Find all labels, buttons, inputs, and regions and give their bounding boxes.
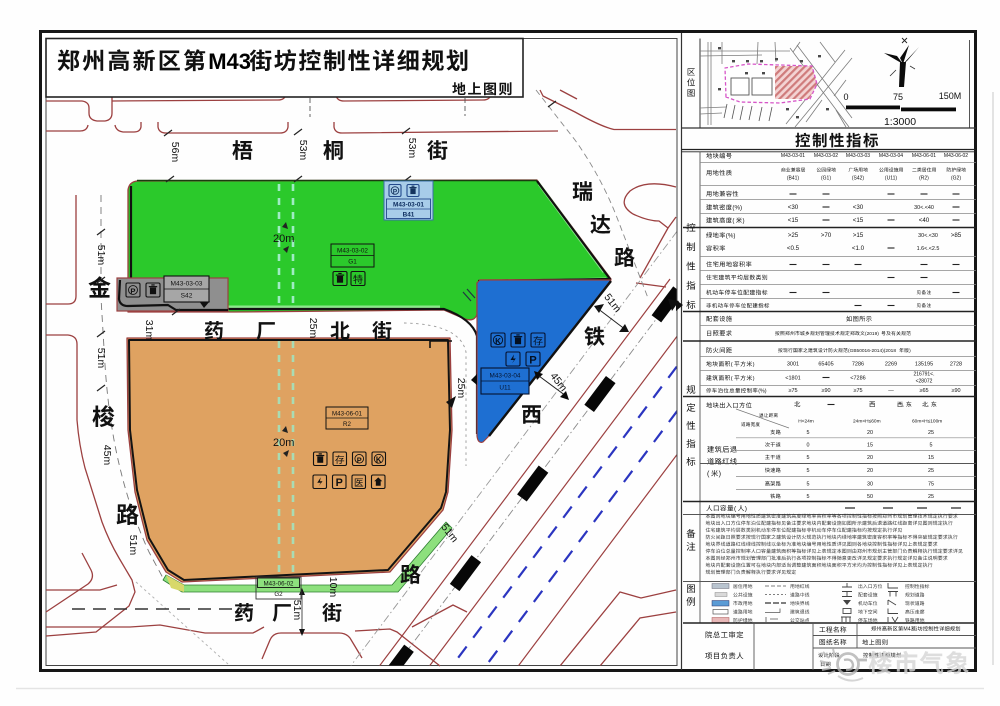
svg-text:(: ( [731, 362, 733, 368]
svg-text:B41: B41 [403, 212, 415, 219]
svg-text:(S42): (S42) [852, 176, 865, 182]
svg-text:60m<H≤100m: 60m<H≤100m [912, 419, 942, 425]
svg-text:>15: >15 [853, 232, 864, 239]
svg-text:<40: <40 [919, 217, 930, 224]
svg-text:(2019): (2019) [865, 331, 879, 337]
svg-text:53m: 53m [297, 140, 309, 161]
svg-text:(R2): (R2) [919, 176, 929, 182]
svg-text:): ) [743, 218, 745, 225]
svg-text:25m: 25m [455, 378, 467, 399]
svg-text:H<24m: H<24m [798, 419, 814, 425]
svg-text:135195: 135195 [915, 362, 933, 368]
svg-text:56m: 56m [169, 142, 181, 163]
svg-text:20: 20 [867, 430, 873, 436]
svg-text:0: 0 [807, 443, 810, 449]
svg-text:): ) [753, 376, 755, 382]
svg-text:31m: 31m [143, 320, 155, 341]
svg-text:): ) [719, 469, 721, 478]
svg-text:(U11): (U11) [885, 176, 897, 182]
svg-text:65405: 65405 [818, 362, 833, 368]
svg-text:7286: 7286 [852, 362, 864, 368]
svg-text:15: 15 [867, 443, 873, 449]
svg-text:24m<H≤60m: 24m<H≤60m [853, 419, 881, 425]
svg-text:≥90: ≥90 [951, 388, 960, 394]
svg-text:5: 5 [930, 443, 933, 449]
svg-text:10m: 10m [327, 577, 339, 598]
svg-text:≥90: ≥90 [821, 388, 830, 394]
svg-text:P: P [529, 354, 537, 366]
svg-text:51m: 51m [95, 245, 107, 266]
svg-text:M43-03-01: M43-03-01 [781, 153, 805, 159]
svg-text:<15: <15 [788, 217, 799, 224]
svg-text:53m: 53m [406, 138, 418, 159]
svg-text:(%): (%) [732, 205, 742, 212]
svg-text:<15: <15 [853, 217, 864, 224]
svg-text:<30: <30 [853, 204, 864, 211]
svg-text:): ) [753, 362, 755, 368]
svg-text:15: 15 [928, 455, 934, 461]
svg-text:25: 25 [928, 468, 934, 474]
svg-text:25: 25 [928, 430, 934, 436]
svg-text:20m: 20m [273, 233, 294, 245]
svg-text:1.6<.<2.5: 1.6<.<2.5 [917, 246, 940, 252]
svg-text:(G2): (G2) [951, 176, 961, 182]
svg-text:20: 20 [867, 468, 873, 474]
svg-text:<7286: <7286 [850, 376, 865, 382]
svg-text:(: ( [731, 376, 733, 382]
svg-text:M43: M43 [903, 627, 913, 633]
svg-text:M43-06-02: M43-06-02 [264, 581, 294, 588]
svg-text:M43-06-02: M43-06-02 [944, 153, 968, 159]
svg-text:45m: 45m [101, 445, 113, 466]
svg-text:): ) [745, 506, 747, 513]
svg-text:G1: G1 [348, 259, 357, 266]
svg-text:P: P [130, 287, 135, 296]
svg-text:>70: >70 [821, 232, 832, 239]
svg-text:>25: >25 [788, 232, 799, 239]
svg-text:30<.<40: 30<.<40 [914, 205, 934, 211]
svg-text:0: 0 [843, 92, 848, 102]
svg-text:(GB50016-2014)(2018: (GB50016-2014)(2018 [848, 348, 896, 354]
svg-text:(%): (%) [726, 233, 736, 240]
svg-text:M43-03-03: M43-03-03 [846, 153, 870, 159]
svg-text:<30: <30 [788, 204, 799, 211]
svg-text:<1.0: <1.0 [852, 245, 865, 252]
svg-text:≥65: ≥65 [919, 388, 928, 394]
svg-text:>85: >85 [951, 232, 962, 239]
svg-text:M43-06-01: M43-06-01 [912, 153, 936, 159]
svg-text:51m: 51m [95, 348, 107, 369]
svg-text:75: 75 [928, 482, 934, 488]
svg-text:K: K [376, 455, 382, 464]
svg-text:R2: R2 [343, 421, 351, 428]
svg-text:1:3000: 1:3000 [884, 116, 916, 128]
svg-text:M43-03-03: M43-03-03 [171, 281, 203, 288]
svg-text:50: 50 [867, 494, 873, 500]
svg-text:20: 20 [867, 455, 873, 461]
svg-text:M43-03-01: M43-03-01 [393, 202, 424, 209]
svg-text:2269: 2269 [885, 362, 897, 368]
svg-text:5: 5 [807, 494, 810, 500]
svg-text:5: 5 [807, 468, 810, 474]
svg-text:U11: U11 [499, 385, 511, 392]
svg-text:<1801: <1801 [785, 376, 800, 382]
svg-text:<28072: <28072 [916, 379, 933, 385]
svg-text:5: 5 [807, 482, 810, 488]
svg-text:2728: 2728 [950, 362, 962, 368]
svg-text:(B41): (B41) [787, 176, 800, 182]
svg-text:P: P [393, 189, 398, 196]
svg-text:20m: 20m [273, 437, 294, 449]
svg-text:≥75: ≥75 [853, 388, 862, 394]
svg-text:(%): (%) [758, 389, 767, 395]
svg-text:M43: M43 [208, 49, 251, 74]
svg-text:G2: G2 [274, 591, 283, 598]
svg-text:P: P [357, 455, 362, 464]
svg-text:—: — [888, 388, 894, 394]
svg-text:P: P [336, 477, 343, 489]
svg-text:75: 75 [893, 92, 903, 102]
svg-text:M43-03-04: M43-03-04 [879, 153, 903, 159]
svg-text:30: 30 [867, 482, 873, 488]
svg-text:M43-03-04: M43-03-04 [490, 373, 521, 380]
svg-text:≥75: ≥75 [788, 388, 797, 394]
svg-text:<0.5: <0.5 [787, 245, 800, 252]
svg-text:150M: 150M [939, 91, 962, 101]
svg-text:S42: S42 [181, 293, 193, 300]
svg-text:5: 5 [807, 430, 810, 436]
svg-text:25: 25 [928, 494, 934, 500]
svg-text:5: 5 [807, 455, 810, 461]
svg-text:K: K [495, 337, 501, 346]
svg-text:216791<.: 216791<. [914, 372, 935, 378]
svg-text:30<.<30: 30<.<30 [918, 233, 938, 239]
svg-text:(G1): (G1) [821, 176, 831, 182]
svg-text:M43-03-02: M43-03-02 [337, 248, 368, 255]
svg-text:25m: 25m [307, 318, 319, 339]
svg-text:M43-06-01: M43-06-01 [332, 411, 362, 418]
svg-text:3001: 3001 [787, 362, 799, 368]
svg-text:51m: 51m [127, 535, 139, 556]
svg-text:51m: 51m [291, 600, 303, 621]
svg-text:M43-03-02: M43-03-02 [814, 153, 838, 159]
